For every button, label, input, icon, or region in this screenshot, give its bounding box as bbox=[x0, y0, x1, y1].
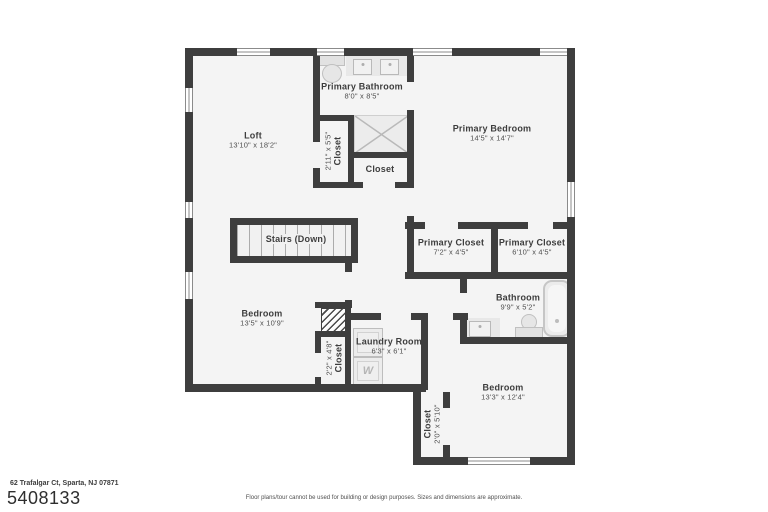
wall bbox=[315, 377, 321, 390]
room-label-bedroom-left: Bedroom 13'5" x 10'9" bbox=[240, 309, 284, 328]
room-label-primary-bedroom: Primary Bedroom 14'5" x 14'7" bbox=[453, 124, 532, 143]
window bbox=[317, 48, 344, 56]
room-label-stairs: Stairs (Down) bbox=[263, 234, 330, 244]
wall bbox=[460, 337, 575, 344]
sink-icon bbox=[353, 59, 372, 75]
room-label-closet-upper: 2'11" x 5'5" Closet bbox=[324, 132, 343, 171]
sink-icon bbox=[469, 321, 491, 337]
wall bbox=[230, 256, 358, 263]
disclaimer-text: Floor plans/tour cannot be used for buil… bbox=[0, 495, 768, 501]
room-name: Primary Bathroom bbox=[321, 82, 403, 92]
wall bbox=[405, 272, 575, 279]
room-name: Bedroom bbox=[240, 309, 284, 319]
wall bbox=[413, 384, 421, 465]
window bbox=[185, 202, 193, 218]
wall bbox=[411, 313, 421, 320]
room-name: Laundry Room bbox=[356, 337, 422, 347]
room-name: Closet bbox=[423, 404, 433, 443]
room-name: Primary Closet bbox=[499, 238, 565, 248]
window bbox=[567, 182, 575, 217]
wall bbox=[395, 182, 413, 188]
room-label-primary-bathroom: Primary Bathroom 8'0" x 8'5" bbox=[321, 82, 403, 101]
wall bbox=[230, 218, 358, 225]
room-dims: 13'5" x 10'9" bbox=[240, 319, 284, 328]
wall bbox=[460, 279, 467, 293]
toilet-icon bbox=[322, 64, 342, 83]
wall bbox=[443, 445, 450, 457]
window bbox=[413, 48, 452, 56]
wall bbox=[421, 313, 428, 390]
room-dims: 9'9" x 5'2" bbox=[496, 303, 540, 312]
window bbox=[468, 457, 530, 465]
room-name: Loft bbox=[229, 131, 277, 141]
room-name: Primary Bedroom bbox=[453, 124, 532, 134]
room-dims: 7'2" x 4'5" bbox=[418, 248, 484, 257]
window bbox=[185, 88, 193, 112]
property-address: 62 Trafalgar Ct, Sparta, NJ 07871 bbox=[10, 480, 119, 487]
room-dims: 6'3" x 6'1" bbox=[356, 347, 422, 356]
room-name: Bedroom bbox=[481, 383, 525, 393]
wall bbox=[185, 384, 426, 392]
room-dims: 2'0" x 5'10" bbox=[433, 404, 442, 443]
room-name: Closet bbox=[333, 132, 343, 171]
wall bbox=[345, 263, 352, 272]
room-dims: 14'5" x 14'7" bbox=[453, 134, 532, 143]
room-name: Closet bbox=[366, 164, 395, 174]
wall bbox=[567, 48, 575, 465]
sink-icon bbox=[380, 59, 399, 75]
room-label-closet-lower: Closet 2'0" x 5'10" bbox=[423, 404, 442, 443]
washer-label: W bbox=[357, 361, 379, 381]
room-dims: 8'0" x 8'5" bbox=[321, 92, 403, 101]
room-name: Closet bbox=[334, 341, 344, 376]
wall bbox=[443, 392, 450, 408]
wall bbox=[230, 218, 237, 263]
shower-icon bbox=[354, 115, 409, 154]
room-dims: 13'10" x 18'2" bbox=[229, 141, 277, 150]
room-label-closet-mid: Closet bbox=[366, 164, 395, 174]
wall bbox=[553, 222, 575, 229]
room-label-loft: Loft 13'10" x 18'2" bbox=[229, 131, 277, 150]
window bbox=[185, 272, 193, 299]
room-name: Bathroom bbox=[496, 293, 540, 303]
wall bbox=[348, 152, 413, 158]
wall bbox=[313, 56, 320, 142]
room-dims: 6'10" x 4'5" bbox=[499, 248, 565, 257]
wall bbox=[407, 56, 414, 82]
wall bbox=[405, 222, 425, 229]
window bbox=[540, 48, 567, 56]
room-label-closet-small: 2'2" x 4'8" Closet bbox=[325, 341, 344, 376]
wall bbox=[351, 313, 381, 320]
room-label-bedroom-right: Bedroom 13'3" x 12'4" bbox=[481, 383, 525, 402]
wall bbox=[351, 218, 358, 263]
room-name: Stairs (Down) bbox=[266, 234, 327, 244]
wall bbox=[491, 222, 498, 279]
window bbox=[237, 48, 270, 56]
room-label-primary-closet-right: Primary Closet 6'10" x 4'5" bbox=[499, 238, 565, 257]
room-name: Primary Closet bbox=[418, 238, 484, 248]
floor-plan-page: W bbox=[0, 0, 768, 512]
room-label-laundry: Laundry Room 6'3" x 6'1" bbox=[356, 337, 422, 356]
wall bbox=[407, 110, 414, 188]
room-dims: 2'2" x 4'8" bbox=[325, 341, 334, 376]
hatched-area bbox=[321, 308, 347, 333]
room-label-primary-closet-left: Primary Closet 7'2" x 4'5" bbox=[418, 238, 484, 257]
washer-icon: W bbox=[353, 357, 383, 385]
room-dims: 13'3" x 12'4" bbox=[481, 393, 525, 402]
room-label-bathroom: Bathroom 9'9" x 5'2" bbox=[496, 293, 540, 312]
wall bbox=[313, 182, 363, 188]
room-dims: 2'11" x 5'5" bbox=[324, 132, 333, 171]
wall bbox=[315, 337, 321, 353]
